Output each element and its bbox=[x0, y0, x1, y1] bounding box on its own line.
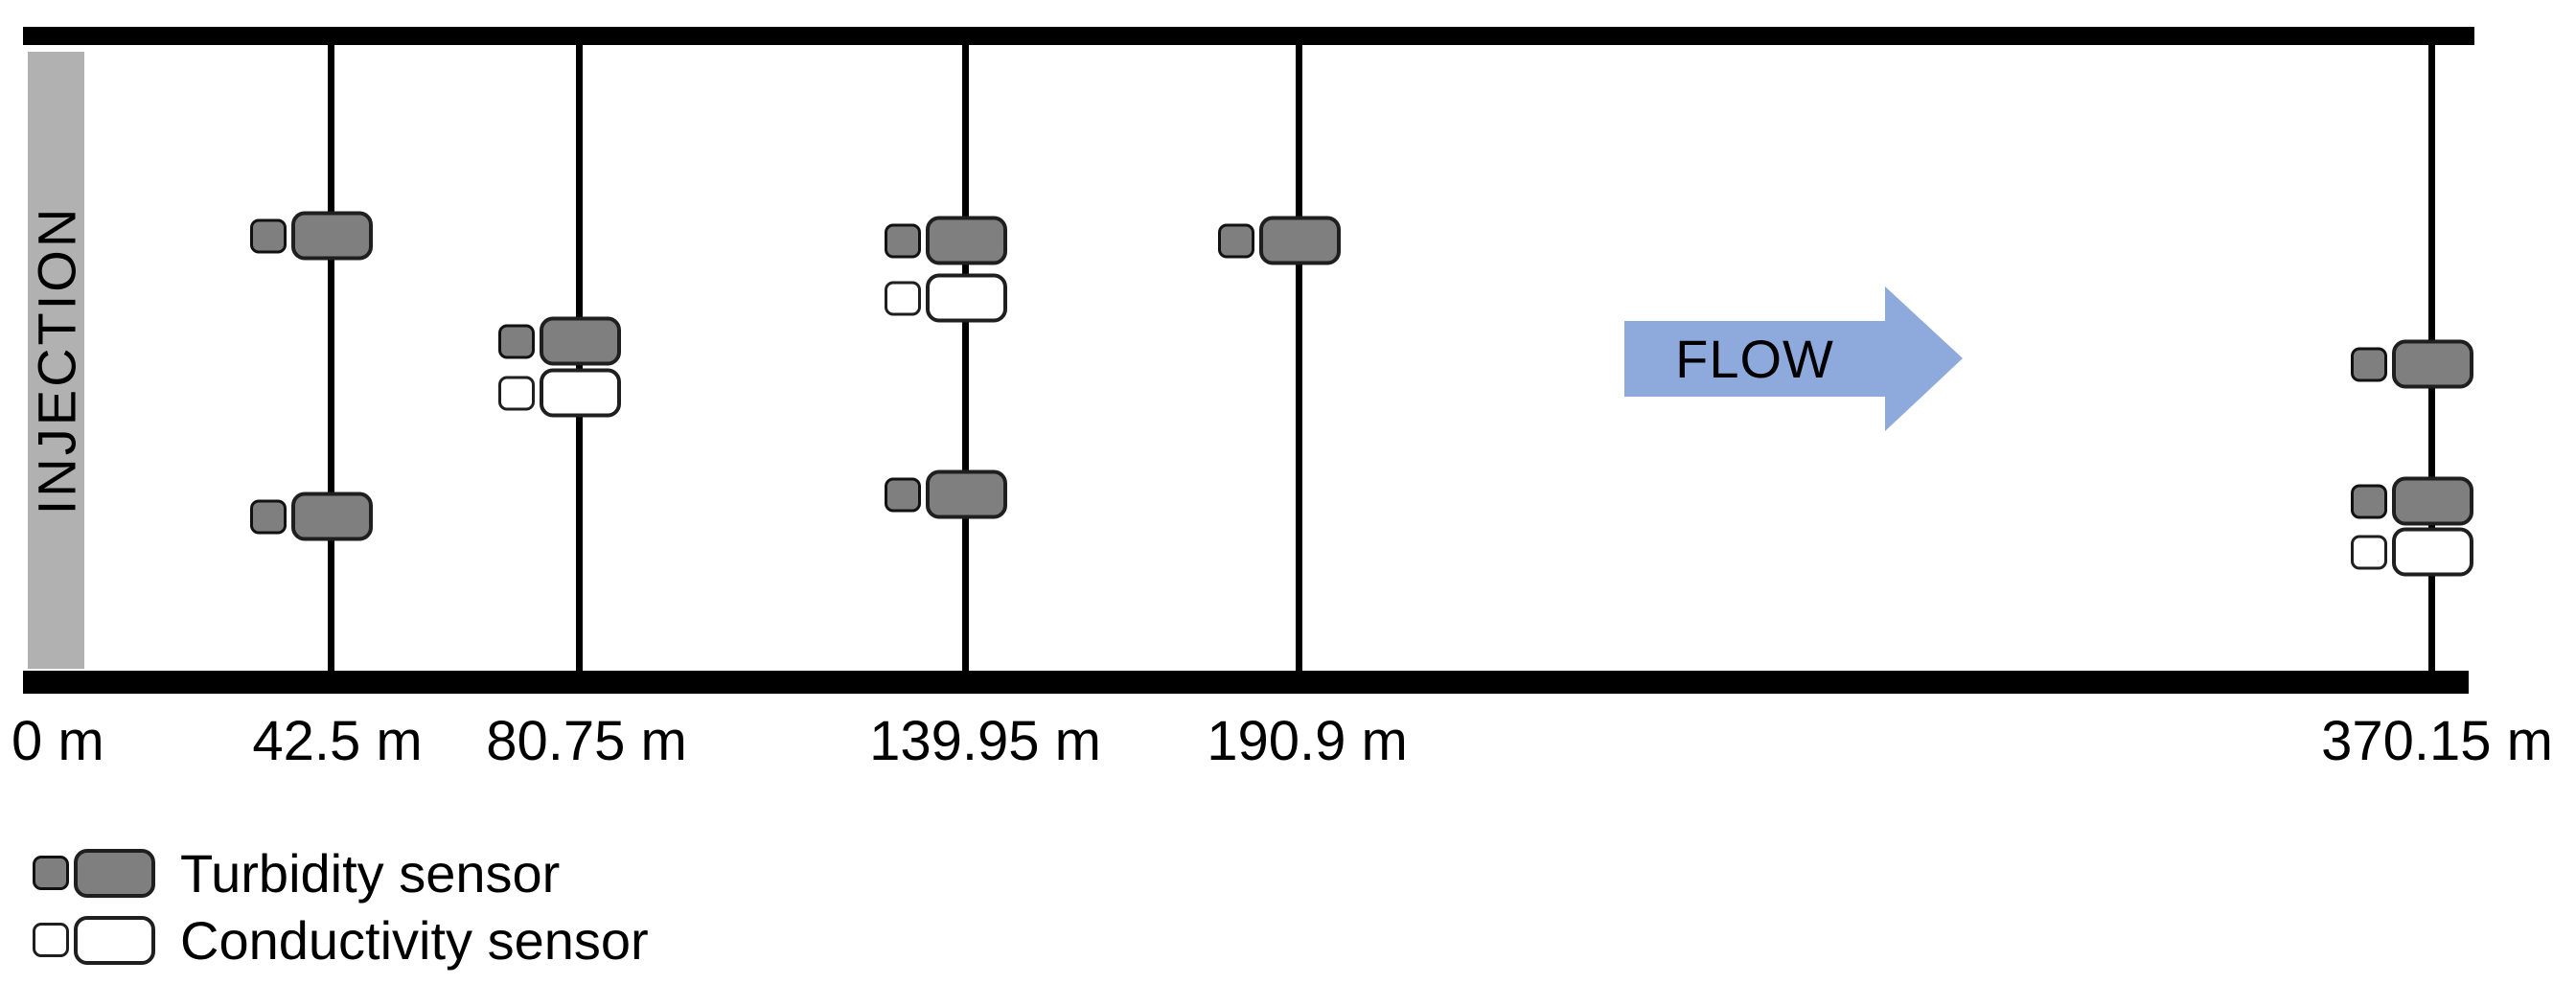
turbidity-sensor bbox=[885, 470, 1007, 519]
station-line-190-9m bbox=[1296, 44, 1302, 672]
sensor-body-icon bbox=[291, 212, 373, 261]
sensor-plug-icon bbox=[33, 856, 69, 890]
turbidity-sensor bbox=[2351, 477, 2473, 526]
sensor-plug-icon bbox=[250, 218, 287, 253]
turbidity-sensor bbox=[1218, 217, 1341, 265]
turbidity-legend-icon bbox=[33, 849, 155, 898]
station-label-80-75m: 80.75 m bbox=[486, 709, 687, 773]
station-label-139-95m: 139.95 m bbox=[869, 709, 1101, 773]
turbidity-sensor bbox=[885, 217, 1007, 265]
station-label-0m: 0 m bbox=[11, 709, 104, 773]
top-wall bbox=[23, 27, 2474, 45]
flow-arrow-icon: FLOW bbox=[1624, 286, 1963, 431]
sensor-body-icon bbox=[291, 492, 373, 541]
flow-arrow-head-icon bbox=[1885, 286, 1963, 431]
legend-label-conductivity: Conductivity sensor bbox=[180, 909, 649, 972]
sensor-plug-icon bbox=[498, 324, 535, 358]
sensor-body-icon bbox=[74, 916, 155, 965]
sensor-plug-icon bbox=[885, 281, 921, 315]
legend-item-turbidity: Turbidity sensor bbox=[33, 843, 649, 903]
station-label-190-9m: 190.9 m bbox=[1207, 709, 1408, 773]
injection-bar: INJECTION bbox=[28, 52, 84, 669]
sensor-body-icon bbox=[540, 369, 621, 418]
sensor-body-icon bbox=[1259, 217, 1341, 265]
sensor-plug-icon bbox=[885, 477, 921, 512]
sensor-plug-icon bbox=[33, 923, 69, 957]
sensor-plug-icon bbox=[2351, 347, 2387, 381]
sensor-body-icon bbox=[2392, 340, 2473, 389]
sensor-plug-icon bbox=[885, 223, 921, 258]
turbidity-sensor bbox=[250, 492, 373, 541]
sensor-plug-icon bbox=[250, 499, 287, 534]
bottom-wall bbox=[23, 671, 2469, 694]
sensor-body-icon bbox=[540, 317, 621, 366]
flume-diagram: INJECTION bbox=[0, 0, 2576, 984]
sensor-body-icon bbox=[926, 274, 1007, 323]
conductivity-legend-icon bbox=[33, 916, 155, 965]
station-line-42-5m bbox=[328, 44, 334, 672]
sensor-plug-icon bbox=[2351, 484, 2387, 518]
conductivity-sensor bbox=[2351, 528, 2473, 577]
flow-arrow-shaft: FLOW bbox=[1624, 321, 1885, 397]
sensor-plug-icon bbox=[2351, 535, 2387, 569]
turbidity-sensor bbox=[2351, 340, 2473, 389]
sensor-plug-icon bbox=[1218, 223, 1254, 258]
station-line-139-95m bbox=[962, 44, 969, 672]
injection-label: INJECTION bbox=[25, 206, 87, 515]
legend-label-turbidity: Turbidity sensor bbox=[180, 842, 560, 904]
sensor-body-icon bbox=[926, 217, 1007, 265]
station-label-370-15m: 370.15 m bbox=[2321, 709, 2553, 773]
turbidity-sensor bbox=[250, 212, 373, 261]
conductivity-sensor bbox=[498, 369, 621, 418]
sensor-body-icon bbox=[2392, 477, 2473, 526]
legend-item-conductivity: Conductivity sensor bbox=[33, 910, 649, 970]
conductivity-sensor bbox=[885, 274, 1007, 323]
station-label-42-5m: 42.5 m bbox=[252, 709, 422, 773]
sensor-body-icon bbox=[2392, 528, 2473, 577]
turbidity-sensor bbox=[498, 317, 621, 366]
sensor-body-icon bbox=[74, 849, 155, 898]
legend: Turbidity sensor Conductivity sensor bbox=[33, 843, 649, 977]
flow-label: FLOW bbox=[1675, 328, 1834, 390]
sensor-plug-icon bbox=[498, 376, 535, 410]
sensor-body-icon bbox=[926, 470, 1007, 519]
